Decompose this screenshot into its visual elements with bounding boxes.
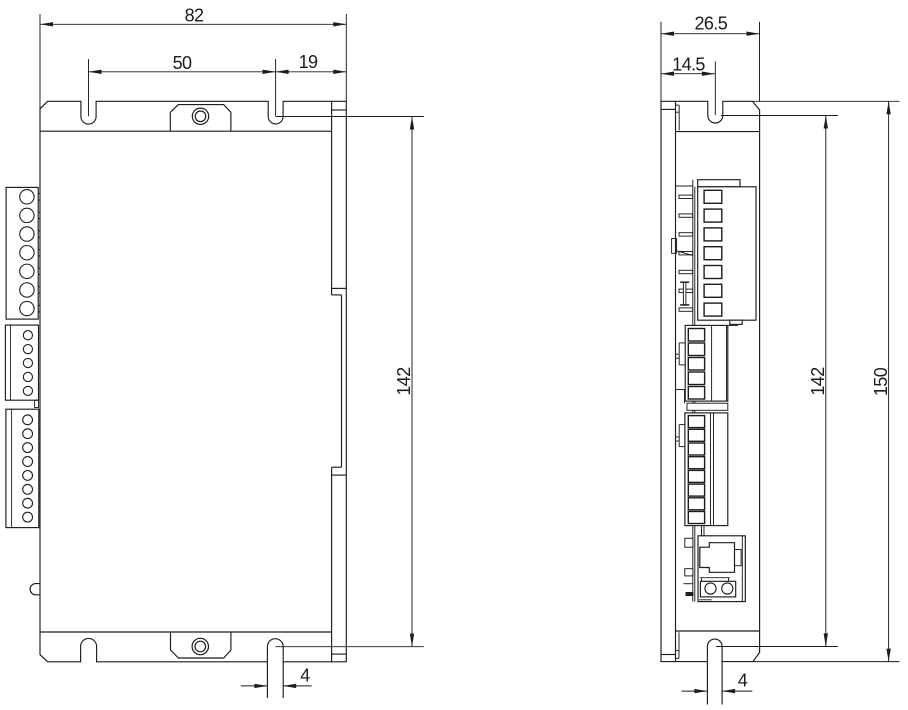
svg-text:142: 142 — [808, 367, 828, 396]
svg-text:4: 4 — [300, 666, 310, 686]
svg-text:4: 4 — [738, 671, 748, 691]
svg-text:142: 142 — [394, 367, 414, 396]
svg-text:14.5: 14.5 — [672, 55, 705, 75]
svg-text:50: 50 — [173, 53, 192, 73]
svg-text:19: 19 — [299, 52, 318, 72]
svg-text:150: 150 — [871, 367, 891, 396]
svg-text:82: 82 — [185, 6, 204, 26]
svg-text:26.5: 26.5 — [694, 13, 727, 33]
